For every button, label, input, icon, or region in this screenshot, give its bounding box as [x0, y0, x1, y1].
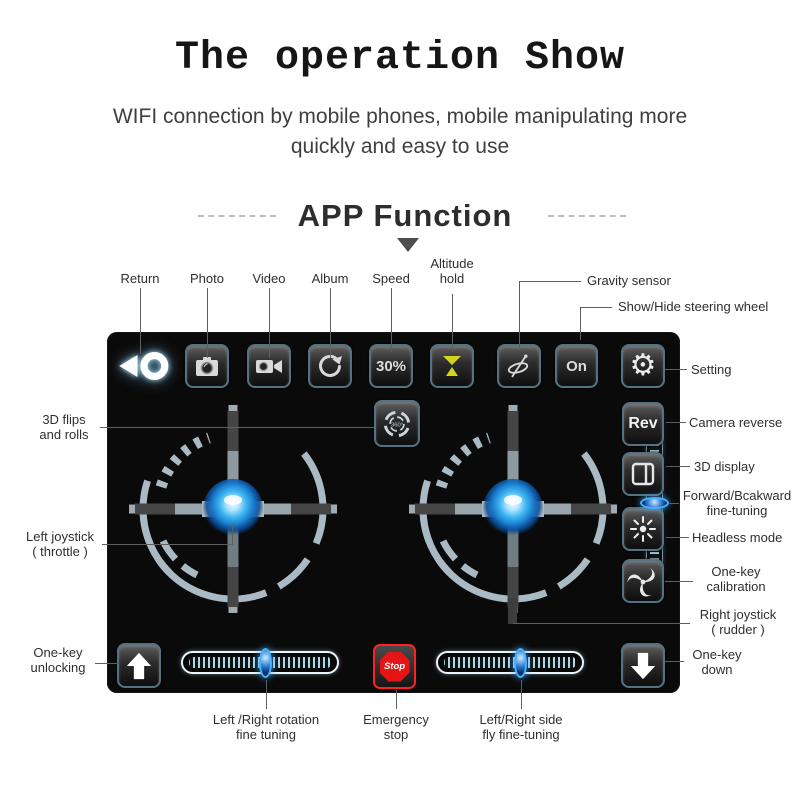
label-camera-reverse: Camera reverse: [689, 415, 782, 430]
right-joystick-knob[interactable]: [483, 479, 543, 539]
stop-label: Stop: [384, 661, 405, 672]
annotation-line: [521, 680, 522, 709]
label-speed: Speed: [361, 271, 421, 286]
annotation-line: [666, 537, 689, 538]
gyroscope-icon: [503, 350, 535, 382]
label-return: Return: [110, 271, 170, 286]
speed-value: 30%: [376, 358, 406, 375]
3d-display-button[interactable]: [622, 452, 664, 496]
label-rotation-fine-tuning: Left /Right rotation fine tuning: [196, 712, 336, 742]
annotation-line: [95, 663, 119, 664]
one-key-calibration-button[interactable]: [622, 559, 664, 603]
camera-reverse-button[interactable]: Rev: [622, 402, 664, 446]
stop-octagon-icon: Stop: [380, 652, 410, 682]
annotation-line: [232, 524, 233, 545]
page-title: The operation Show: [0, 36, 800, 81]
annotation-line: [396, 690, 397, 709]
annotation-line: [669, 503, 679, 504]
label-right-joystick: Right joystick ( rudder ): [694, 607, 782, 637]
annotation-line: [391, 288, 392, 352]
flip-360-text: 360°: [391, 422, 403, 428]
annotation-line: [513, 623, 690, 624]
label-steering-wheel: Show/Hide steering wheel: [618, 299, 768, 314]
one-key-down-button[interactable]: [621, 643, 665, 688]
label-3d-display: 3D display: [694, 459, 755, 474]
rev-label: Rev: [628, 415, 657, 433]
annotation-line: [102, 544, 233, 545]
label-photo: Photo: [177, 271, 237, 286]
flip-360-button[interactable]: 360°: [374, 400, 420, 447]
label-video: Video: [239, 271, 299, 286]
annotation-line: [580, 307, 612, 308]
left-joystick[interactable]: [123, 399, 343, 619]
down-triangle-icon: [397, 238, 419, 252]
page-subtitle: WIFI connection by mobile phones, mobile…: [0, 102, 800, 162]
forward-backward-slider-handle[interactable]: [640, 497, 669, 509]
label-headless-mode: Headless mode: [692, 530, 782, 545]
annotation-line: [100, 427, 374, 428]
annotation-line: [266, 680, 267, 709]
annotation-line: [666, 422, 686, 423]
label-gravity-sensor: Gravity sensor: [587, 273, 671, 288]
setting-button[interactable]: ⚙: [621, 344, 665, 388]
emergency-stop-button[interactable]: Stop: [373, 644, 416, 689]
side-fly-slider-handle[interactable]: [514, 648, 527, 678]
label-fwd-bwd-fine-tuning: Forward/Bcakward fine-tuning: [678, 488, 796, 518]
gravity-sensor-button[interactable]: [497, 344, 541, 388]
annotation-line: [452, 294, 453, 352]
split-screen-icon: [627, 458, 659, 490]
up-arrow-icon: [124, 650, 154, 682]
propeller-icon: [627, 565, 659, 597]
annotation-line: [519, 281, 520, 350]
heading-dash-left: [198, 215, 276, 217]
heading-dash-right: [548, 215, 626, 217]
down-arrow-icon: [628, 650, 658, 682]
label-side-fly-fine-tuning: Left/Right side fly fine-tuning: [451, 712, 591, 742]
right-joystick-stem: [508, 598, 517, 624]
annotation-line: [207, 288, 208, 358]
annotation-line: [269, 288, 270, 358]
return-button[interactable]: [118, 347, 170, 390]
label-setting: Setting: [691, 362, 731, 377]
label-one-key-unlocking: One-key unlocking: [22, 645, 94, 675]
annotation-line: [140, 288, 141, 354]
annotation-line: [519, 281, 581, 282]
annotation-line: [666, 466, 690, 467]
right-joystick[interactable]: [403, 399, 623, 619]
annotation-line: [665, 369, 687, 370]
annotation-line: [330, 288, 331, 358]
one-key-unlock-button[interactable]: [117, 643, 161, 688]
label-one-key-calibration: One-key calibration: [698, 564, 774, 594]
label-one-key-down: One-key down: [686, 647, 748, 677]
label-altitude-hold: Altitude hold: [422, 256, 482, 286]
label-3d-flips: 3D flips and rolls: [30, 412, 98, 442]
sun-compass-icon: [627, 513, 659, 545]
annotation-line: [580, 307, 581, 340]
annotation-line: [665, 661, 684, 662]
rotation-slider-handle[interactable]: [259, 648, 272, 678]
side-fly-fine-tuning-slider[interactable]: [436, 651, 584, 674]
altitude-hold-icon: [436, 350, 468, 382]
steering-wheel-toggle[interactable]: On: [555, 344, 598, 388]
annotation-line: [665, 581, 693, 582]
flip-360-icon: 360°: [380, 407, 414, 441]
on-label: On: [566, 358, 587, 375]
left-joystick-knob[interactable]: [203, 479, 263, 539]
label-left-joystick: Left joystick ( throttle ): [20, 529, 100, 559]
label-album: Album: [300, 271, 360, 286]
section-heading: APP Function: [0, 198, 800, 234]
headless-mode-button[interactable]: [622, 507, 664, 551]
label-emergency-stop: Emergency stop: [346, 712, 446, 742]
gear-icon: ⚙: [630, 351, 657, 381]
back-arrow-icon: [118, 347, 170, 385]
